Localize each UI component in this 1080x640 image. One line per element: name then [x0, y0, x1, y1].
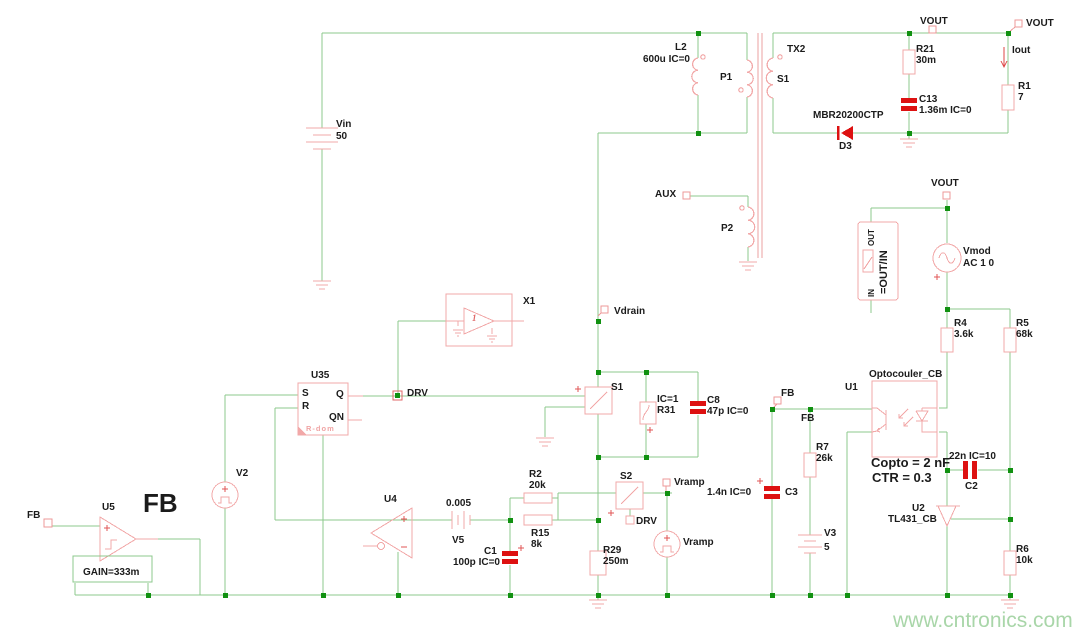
- c8-capacitor: [690, 401, 706, 414]
- r5-value: 68k: [1016, 329, 1033, 341]
- v3-value: 5: [824, 542, 830, 554]
- iout-arrow: [1001, 47, 1007, 67]
- vramp-source[interactable]: [654, 531, 680, 557]
- r1-name: R1: [1018, 81, 1031, 93]
- fb-terminal-left: [44, 519, 52, 527]
- d3-name-label: D3: [839, 141, 852, 153]
- tx-s1-label: S1: [777, 74, 789, 86]
- c3-value: 1.4n IC=0: [707, 487, 751, 499]
- vout-label-top: VOUT: [920, 16, 948, 28]
- r5-resistor: [1004, 328, 1016, 352]
- pin-stubs: [348, 321, 524, 546]
- r21-name: R21: [916, 44, 934, 56]
- d3-diode[interactable]: [838, 126, 853, 140]
- u2-part: TL431_CB: [888, 514, 937, 526]
- ff-s-pin: S: [302, 388, 309, 400]
- r15-resistor: [524, 515, 552, 525]
- tx2-label: TX2: [787, 44, 805, 56]
- vout-label-right: VOUT: [1026, 18, 1054, 30]
- c8-name: C8: [707, 395, 720, 407]
- r7-resistor: [804, 453, 816, 477]
- r29-value: 250m: [603, 556, 629, 568]
- r21-resistor: [903, 50, 915, 74]
- v3-source[interactable]: [798, 535, 822, 553]
- r1-resistor: [1002, 85, 1014, 110]
- r29-name: R29: [603, 545, 621, 557]
- ff-qn-pin: QN: [329, 412, 344, 424]
- ctr-label: CTR = 0.3: [872, 471, 932, 486]
- watermark: www.cntronics.com: [893, 610, 1073, 631]
- r6-name: R6: [1016, 544, 1029, 556]
- copto-label: Copto = 2 nF: [871, 456, 950, 471]
- vdrain-terminal: [598, 306, 608, 316]
- v2-source[interactable]: [212, 482, 238, 508]
- r15-name: R15: [531, 528, 549, 540]
- c3-capacitor: [764, 486, 780, 499]
- vmod-value: AC 1 0: [963, 258, 994, 270]
- ff-q-pin: Q: [336, 389, 344, 401]
- c13-name: C13: [919, 94, 937, 106]
- gain-label: GAIN=333m: [83, 567, 139, 579]
- vin-source[interactable]: [306, 128, 338, 149]
- r4-name: R4: [954, 318, 967, 330]
- r2-value: 20k: [529, 480, 546, 492]
- u2-tl431[interactable]: [936, 506, 960, 526]
- x1-inner-label: 1: [472, 314, 477, 323]
- vin-value: 50: [336, 131, 347, 143]
- r6-value: 10k: [1016, 555, 1033, 567]
- drv-label-s2: DRV: [636, 516, 657, 528]
- fb-big-label: FB: [143, 490, 178, 516]
- u4-label: U4: [384, 494, 397, 506]
- c8-value: 47p IC=0: [707, 406, 748, 418]
- schematic-canvas: Vin 50 L2 600u IC=0 P1 TX2 S1 AUX P2 Vdr…: [0, 0, 1080, 640]
- s1-switch[interactable]: [575, 386, 612, 414]
- r6-resistor: [1004, 551, 1016, 575]
- u5-label: U5: [102, 502, 115, 514]
- s2-switch-label: S2: [620, 471, 632, 483]
- r4-value: 3.6k: [954, 329, 973, 341]
- p1-label: P1: [720, 72, 732, 84]
- r7-value: 26k: [816, 453, 833, 465]
- x1-label: X1: [523, 296, 535, 308]
- r7-name: R7: [816, 442, 829, 454]
- v5-source[interactable]: [452, 511, 470, 529]
- r5-name: R5: [1016, 318, 1029, 330]
- r2-resistor: [524, 493, 552, 503]
- c1-value: 100p IC=0: [453, 557, 500, 569]
- r1-value: 7: [1018, 92, 1024, 104]
- c1-capacitor: [502, 551, 518, 564]
- c3-name: C3: [785, 487, 798, 499]
- vmod-name: Vmod: [963, 246, 991, 258]
- r4-resistor: [941, 328, 953, 352]
- d3-part-label: MBR20200CTP: [813, 110, 884, 122]
- x1-driver[interactable]: [446, 294, 512, 346]
- r2-name: R2: [529, 469, 542, 481]
- u35-label: U35: [311, 370, 329, 382]
- r31-name: R31: [657, 405, 675, 417]
- vramp-terminal: [663, 479, 670, 493]
- c2-value: 22n IC=10: [949, 451, 996, 463]
- c2-name: C2: [965, 481, 978, 493]
- ratio-label: =OUT/IN: [879, 250, 890, 294]
- p2-label: P2: [721, 223, 733, 235]
- c2-capacitor: [963, 461, 977, 479]
- s1-switch-label: S1: [611, 382, 623, 394]
- drv-label-main: DRV: [407, 388, 428, 400]
- l2-inductor[interactable]: [692, 55, 705, 95]
- l2-value: 600u IC=0: [643, 54, 690, 66]
- r15-value: 8k: [531, 539, 542, 551]
- opto-title: Optocouler_CB: [869, 369, 942, 381]
- fb-label-net: FB: [801, 413, 814, 425]
- u1-label: U1: [845, 382, 858, 394]
- v3-name: V3: [824, 528, 836, 540]
- transformer-tx2[interactable]: [739, 33, 782, 258]
- u1-optocoupler[interactable]: [872, 381, 937, 457]
- vout-label-mid: VOUT: [931, 178, 959, 190]
- ff-r-pin: R: [302, 401, 309, 413]
- vramp-source-label: Vramp: [683, 537, 714, 549]
- fb-label-terminal: FB: [781, 388, 794, 400]
- ratio-in-label: IN: [868, 289, 876, 297]
- vout-terminal-mid: [943, 192, 950, 199]
- iout-label: Iout: [1012, 45, 1030, 57]
- vramp-terminal-label: Vramp: [674, 477, 705, 489]
- aux-label: AUX: [655, 189, 676, 201]
- vdrain-label: Vdrain: [614, 306, 645, 318]
- vin-name: Vin: [336, 119, 351, 131]
- l2-name: L2: [675, 42, 687, 54]
- terminals[interactable]: [44, 20, 1022, 527]
- u4-comparator[interactable]: [371, 508, 412, 558]
- fb-label-left: FB: [27, 510, 40, 522]
- ratio-out-label: OUT: [868, 229, 876, 246]
- r31-ic-label: IC=1: [657, 394, 678, 406]
- c13-value: 1.36m IC=0: [919, 105, 972, 117]
- ff-rdom-label: R-dom: [306, 425, 335, 433]
- aux-terminal: [683, 192, 690, 199]
- c13-capacitor: [901, 98, 917, 111]
- r31-resistor[interactable]: [640, 402, 656, 433]
- v5-value: 0.005: [446, 498, 471, 510]
- r21-value: 30m: [916, 55, 936, 67]
- u5-amp[interactable]: [100, 517, 158, 561]
- u2-name: U2: [912, 503, 925, 515]
- v2-label: V2: [236, 468, 248, 480]
- v5-name: V5: [452, 535, 464, 547]
- c1-name: C1: [484, 546, 497, 558]
